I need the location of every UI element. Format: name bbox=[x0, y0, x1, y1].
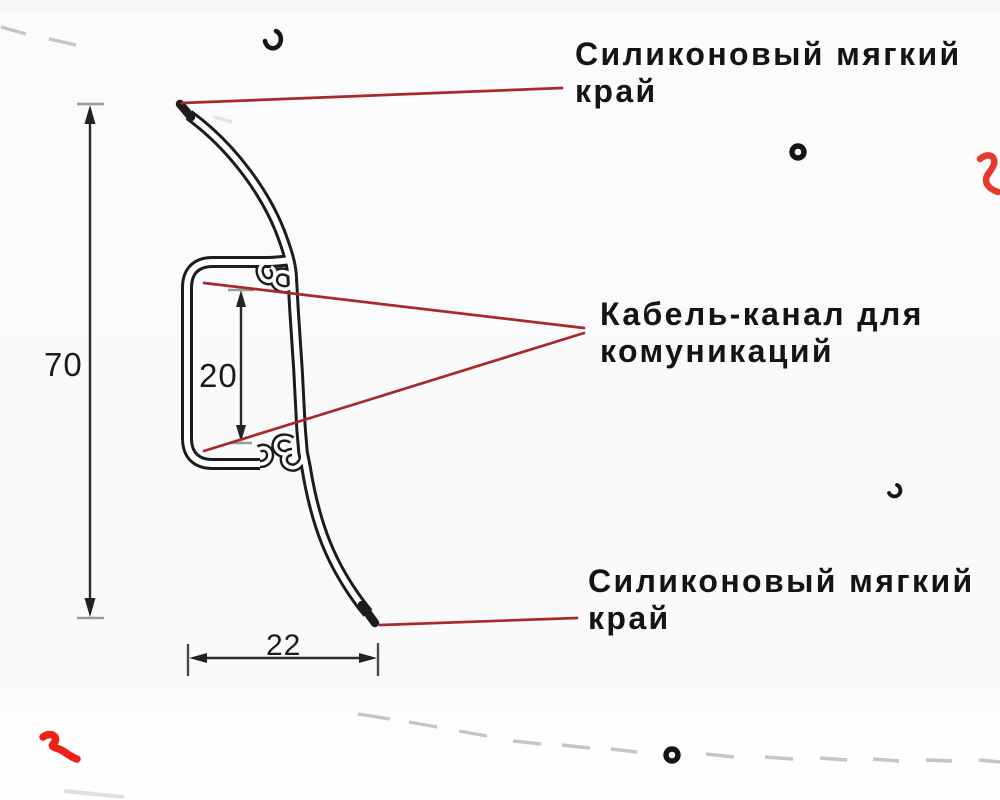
dash-segment bbox=[706, 754, 734, 757]
red-squiggle bbox=[43, 735, 77, 759]
label-line: комуникаций bbox=[600, 333, 924, 370]
label-cable-channel: Кабель-канал для комуникаций bbox=[600, 296, 924, 370]
background-dash-marks bbox=[1, 27, 1000, 797]
dimension-channel-value: 20 bbox=[199, 357, 238, 395]
dimension-height-value: 70 bbox=[44, 346, 83, 384]
ink-ring bbox=[666, 749, 678, 761]
arrowhead-left bbox=[189, 653, 207, 663]
dash-segment bbox=[358, 714, 390, 719]
leader-bottom-edge bbox=[380, 618, 577, 625]
dash-segment bbox=[409, 722, 437, 727]
label-bottom-silicone-edge: Силиконовый мягкий край bbox=[588, 563, 975, 637]
bottom-silicone-tip bbox=[362, 605, 375, 623]
arrowhead-up bbox=[236, 290, 246, 307]
dash-segment bbox=[611, 749, 637, 752]
label-line: Кабель-канал для bbox=[600, 296, 924, 333]
dash-segment bbox=[49, 39, 76, 45]
dimension-width-value: 22 bbox=[266, 629, 301, 663]
ink-ring bbox=[792, 146, 804, 158]
label-top-silicone-edge: Силиконовый мягкий край bbox=[575, 36, 962, 110]
plinth-cross-section-drawing bbox=[0, 0, 1000, 800]
dash-segment bbox=[979, 760, 1000, 762]
label-line: Силиконовый мягкий bbox=[575, 36, 962, 73]
leader-channel-upper bbox=[204, 283, 584, 328]
label-line: край bbox=[575, 73, 962, 110]
top-silicone-tip bbox=[180, 104, 191, 117]
dash-segment bbox=[513, 741, 541, 744]
ink-comma bbox=[889, 485, 900, 496]
red-squiggle bbox=[980, 155, 998, 192]
dash-segment bbox=[214, 117, 232, 122]
faint-streak bbox=[64, 791, 124, 797]
arrowhead-right bbox=[359, 653, 377, 663]
dash-segment bbox=[765, 757, 793, 759]
leader-channel-lower bbox=[204, 333, 584, 451]
dash-segment bbox=[926, 760, 952, 761]
dash-segment bbox=[1, 27, 26, 34]
dash-segment bbox=[820, 758, 847, 760]
arrowhead-down bbox=[85, 598, 96, 617]
dash-segment bbox=[562, 745, 590, 748]
label-line: край bbox=[588, 600, 975, 637]
diagram-canvas: 70 20 22 Силиконовый мягкий край Кабель-… bbox=[0, 0, 1000, 800]
dash-segment bbox=[873, 759, 899, 761]
ink-comma bbox=[265, 31, 281, 48]
arrowhead-up bbox=[85, 105, 96, 124]
leader-top-edge bbox=[182, 88, 562, 103]
label-line: Силиконовый мягкий bbox=[588, 563, 975, 600]
dash-segment bbox=[459, 731, 487, 736]
